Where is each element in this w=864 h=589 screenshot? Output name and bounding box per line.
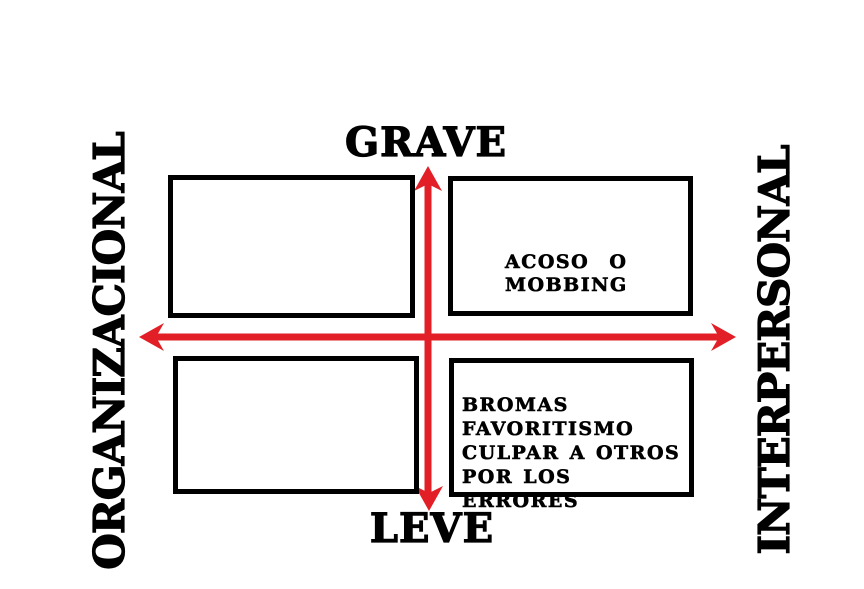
vertical-axis-top-label: GRAVE	[345, 123, 507, 163]
quadrant-bottom-right-box: BROMAS FAVORITISMO CULPAR A OTROS POR LO…	[449, 358, 694, 497]
horizontal-axis-right-label: INTERPERSONAL	[754, 145, 796, 554]
quadrant-bottom-left-box	[173, 356, 419, 494]
horizontal-axis-left-label: ORGANIZACIONAL	[89, 132, 131, 569]
vertical-axis-bottom-label: LEVE	[370, 509, 494, 549]
quadrant-diagram: GRAVE LEVE ORGANIZACIONAL INTERPERSONAL …	[0, 0, 864, 589]
quadrant-top-right-text: ACOSO O MOBBING	[505, 251, 628, 297]
quadrant-bottom-right-text: BROMAS FAVORITISMO CULPAR A OTROS POR LO…	[462, 393, 689, 513]
quadrant-top-right-box: ACOSO O MOBBING	[448, 176, 693, 316]
quadrant-top-left-box	[168, 175, 415, 318]
